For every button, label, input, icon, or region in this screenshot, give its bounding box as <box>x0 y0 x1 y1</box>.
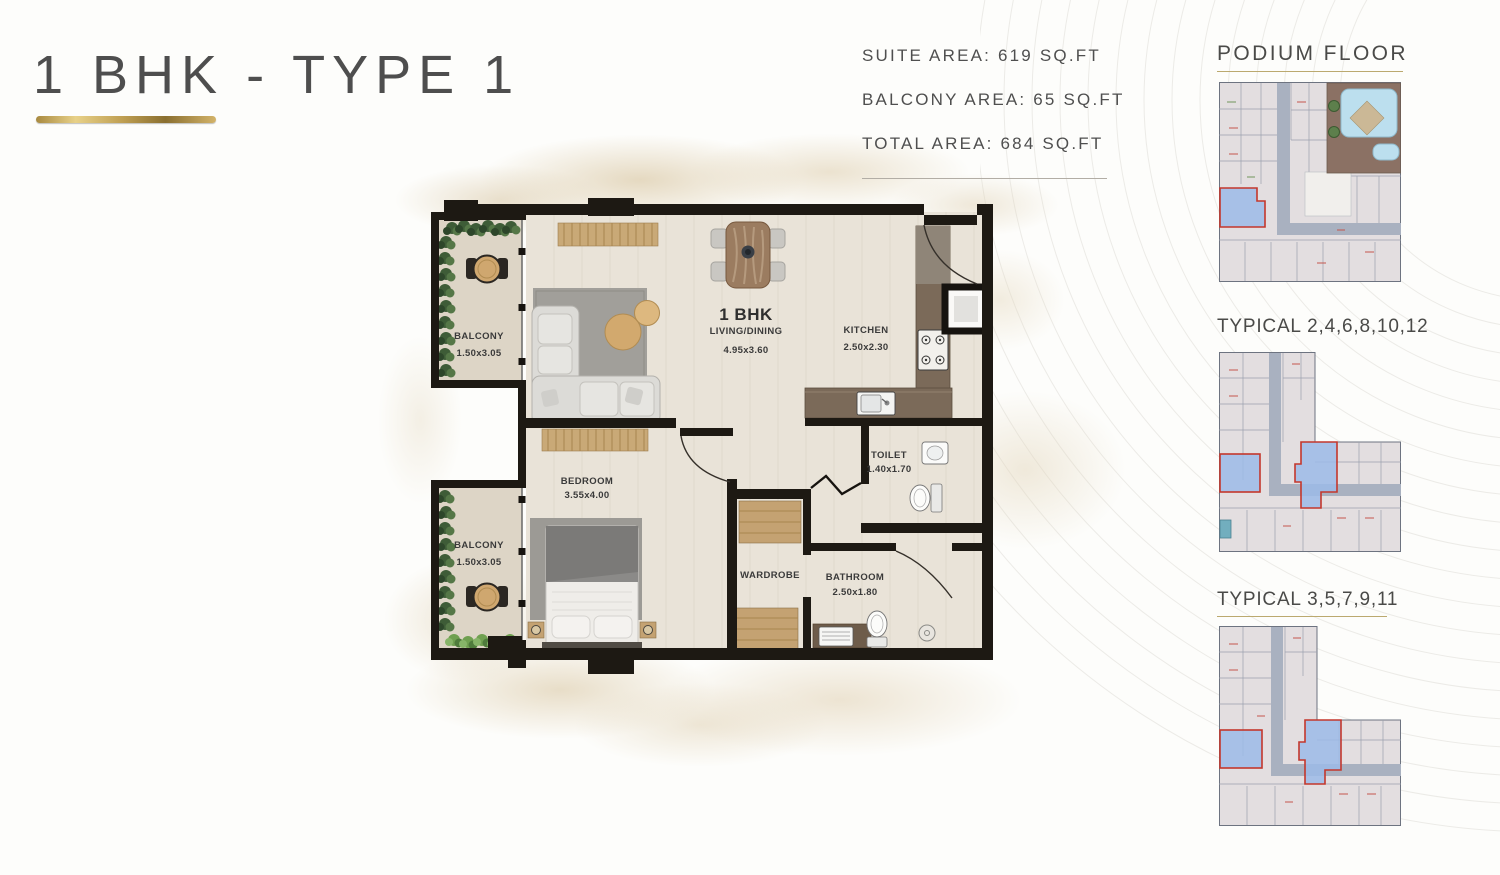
toilet-basin <box>922 442 948 464</box>
podium-floor-underline <box>1217 71 1403 72</box>
room-label-kitchen: KITCHEN <box>843 325 888 336</box>
room-label-bedroom: BEDROOM <box>561 476 613 487</box>
shower-head <box>919 625 935 641</box>
balcony-table-top <box>466 256 508 283</box>
room-label-balcony-bottom: BALCONY <box>454 540 504 551</box>
room-label-living: LIVING/DINING <box>710 326 783 337</box>
floor-plan: 1 BHK LIVING/DINING 4.95x3.60 KITCHEN 2.… <box>430 196 1008 680</box>
media-console <box>558 223 658 246</box>
section-podium: PODIUM FLOOR <box>1217 42 1403 284</box>
typical-odd-heading: TYPICAL 3,5,7,9,11 <box>1217 589 1403 611</box>
room-dims-bedroom: 3.55x4.00 <box>565 490 610 501</box>
total-area-text: TOTAL AREA: 684 SQ.FT <box>862 134 1125 154</box>
room-label-bathroom: BATHROOM <box>826 572 884 583</box>
kitchen-sink <box>857 392 895 415</box>
toilet-fixture <box>910 484 942 512</box>
room-label-unit: 1 BHK <box>719 305 773 324</box>
title-underline <box>36 116 216 123</box>
section-typical-even: TYPICAL 2,4,6,8,10,12 <box>1217 316 1403 554</box>
balcony-area-text: BALCONY AREA: 65 SQ.FT <box>862 90 1125 110</box>
room-label-wardrobe: WARDROBE <box>740 570 800 581</box>
room-dims-kitchen: 2.50x2.30 <box>844 342 889 353</box>
thumbnail-typical-odd <box>1217 624 1403 828</box>
typical-even-heading: TYPICAL 2,4,6,8,10,12 <box>1217 316 1403 338</box>
room-dims-balcony-bottom: 1.50x3.05 <box>457 557 502 568</box>
bed <box>542 526 642 651</box>
podium-floor-heading: PODIUM FLOOR <box>1217 42 1403 66</box>
service-shaft <box>945 287 987 331</box>
bedroom-dresser <box>542 429 648 451</box>
room-dims-toilet: 1.40x1.70 <box>867 464 912 475</box>
room-dims-living: 4.95x3.60 <box>724 345 769 356</box>
area-divider <box>862 178 1107 179</box>
section-typical-odd: TYPICAL 3,5,7,9,11 <box>1217 589 1403 828</box>
balcony-table-bottom <box>466 584 508 611</box>
room-dims-bathroom: 2.50x1.80 <box>833 587 878 598</box>
room-dims-balcony-top: 1.50x3.05 <box>457 348 502 359</box>
bathroom-vanity <box>813 624 871 648</box>
typical-odd-underline <box>1217 616 1387 617</box>
page-title: 1 BHK - TYPE 1 <box>33 44 520 106</box>
thumbnail-typical-even <box>1217 350 1403 554</box>
suite-area-text: SUITE AREA: 619 SQ.FT <box>862 46 1125 66</box>
room-label-balcony-top: BALCONY <box>454 331 504 342</box>
stove <box>918 330 948 370</box>
bathroom-toilet <box>867 611 887 647</box>
thumbnail-podium-floor <box>1217 80 1403 284</box>
room-label-toilet: TOILET <box>871 450 907 461</box>
area-summary: SUITE AREA: 619 SQ.FT BALCONY AREA: 65 S… <box>862 46 1125 179</box>
